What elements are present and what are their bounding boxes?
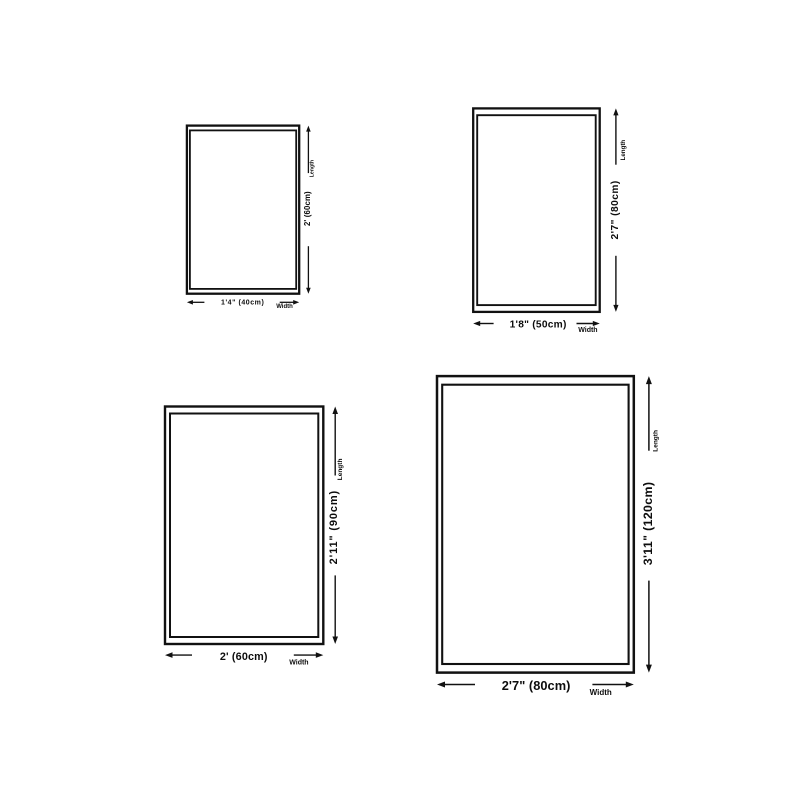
svg-text:3'11" (120cm): 3'11" (120cm) <box>641 482 655 566</box>
svg-text:Length: Length <box>620 140 627 161</box>
svg-text:2'7" (80cm): 2'7" (80cm) <box>502 678 571 693</box>
svg-text:1'4" (40cm): 1'4" (40cm) <box>221 299 264 306</box>
svg-text:2' (60cm): 2' (60cm) <box>303 191 312 226</box>
svg-text:Width: Width <box>590 688 612 697</box>
svg-text:Length: Length <box>309 160 315 177</box>
svg-text:Width: Width <box>276 304 293 310</box>
svg-text:2'11" (90cm): 2'11" (90cm) <box>328 490 340 564</box>
svg-text:Length: Length <box>653 430 660 452</box>
svg-text:Length: Length <box>337 459 344 481</box>
svg-text:Width: Width <box>578 327 597 334</box>
svg-text:1'8" (50cm): 1'8" (50cm) <box>510 320 567 331</box>
svg-text:2'7" (80cm): 2'7" (80cm) <box>610 180 621 239</box>
svg-text:Width: Width <box>289 660 308 667</box>
svg-text:2' (60cm): 2' (60cm) <box>220 651 268 663</box>
